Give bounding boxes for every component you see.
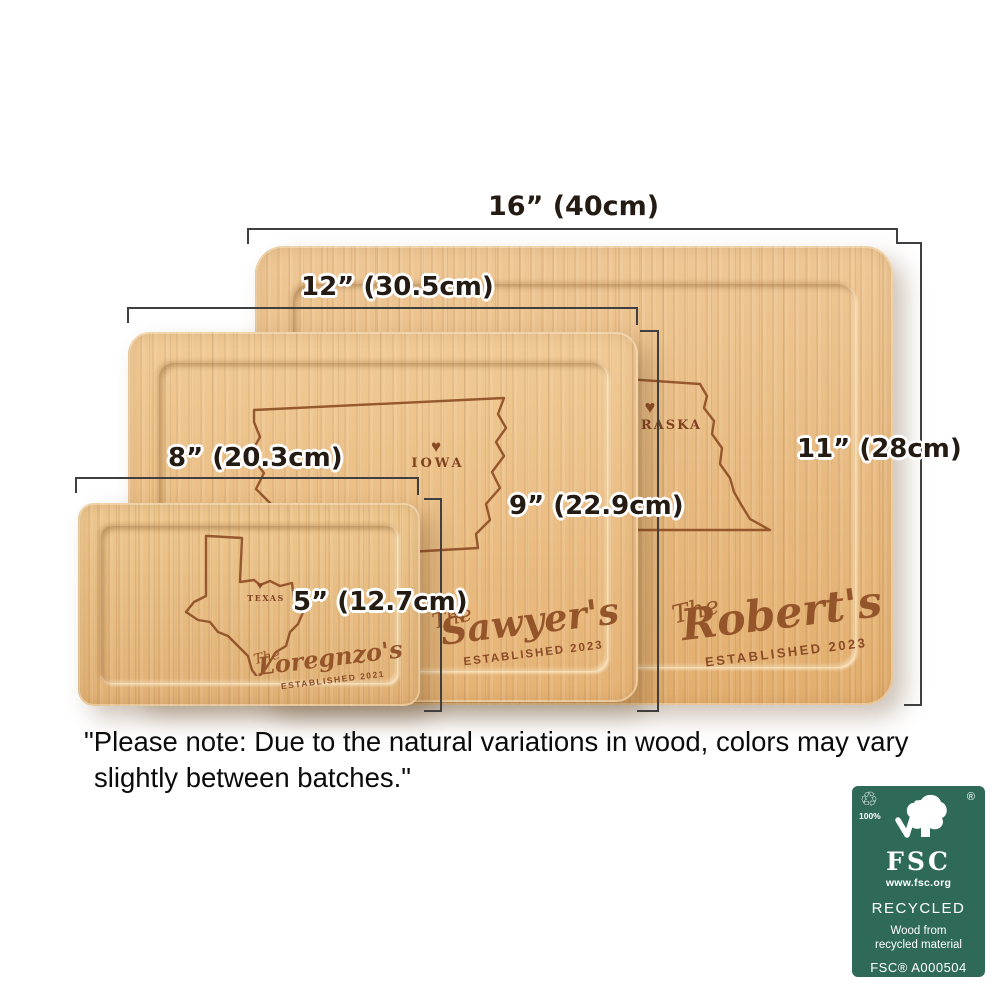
fsc-tree-logo-icon: [890, 790, 948, 848]
fsc-certification-badge: ♲ 100% ® FSC www.fsc.org RECYCLED Wood f…: [852, 786, 985, 977]
dimension-label-5in: 5” (12.7cm): [293, 587, 468, 617]
fsc-description: Wood from recycled material: [852, 924, 985, 953]
dimension-bracket-9in: [637, 331, 658, 711]
dimension-label-9in: 9” (22.9cm): [509, 491, 684, 521]
dimension-label-11in: 11” (28cm): [797, 434, 962, 464]
dimension-bracket-11in: [897, 243, 921, 705]
fsc-wordmark: FSC: [852, 847, 985, 876]
fsc-percent-label: 100%: [859, 811, 881, 821]
dimension-label-16in: 16” (40cm): [488, 191, 659, 222]
fsc-description-line-2: recycled material: [852, 938, 985, 952]
fsc-website: www.fsc.org: [852, 877, 985, 889]
dimension-label-12in: 12” (30.5cm): [301, 272, 494, 302]
note-line-1: "Please note: Due to the natural variati…: [84, 724, 909, 760]
dimension-bracket-16in: [248, 229, 897, 244]
fsc-logo-row: ♲ 100% ®: [852, 786, 985, 850]
product-dimension-infographic: ♥ NEBRASKA The Robert's ESTABLISHED 2023…: [0, 0, 1000, 1000]
disclaimer-note: "Please note: Due to the natural variati…: [84, 724, 909, 797]
fsc-license-code: FSC® A000504: [852, 960, 985, 975]
registered-trademark-icon: ®: [967, 791, 975, 803]
recycle-icon: ♲: [860, 789, 878, 809]
dimension-label-8in: 8” (20.3cm): [168, 443, 343, 473]
fsc-description-line-1: Wood from: [852, 924, 985, 938]
dimension-lines: [0, 0, 1000, 1000]
note-line-2: slightly between batches.": [84, 760, 909, 796]
dimension-bracket-8in: [76, 478, 418, 495]
dimension-bracket-12in: [128, 308, 637, 325]
fsc-category-label: RECYCLED: [852, 900, 985, 917]
